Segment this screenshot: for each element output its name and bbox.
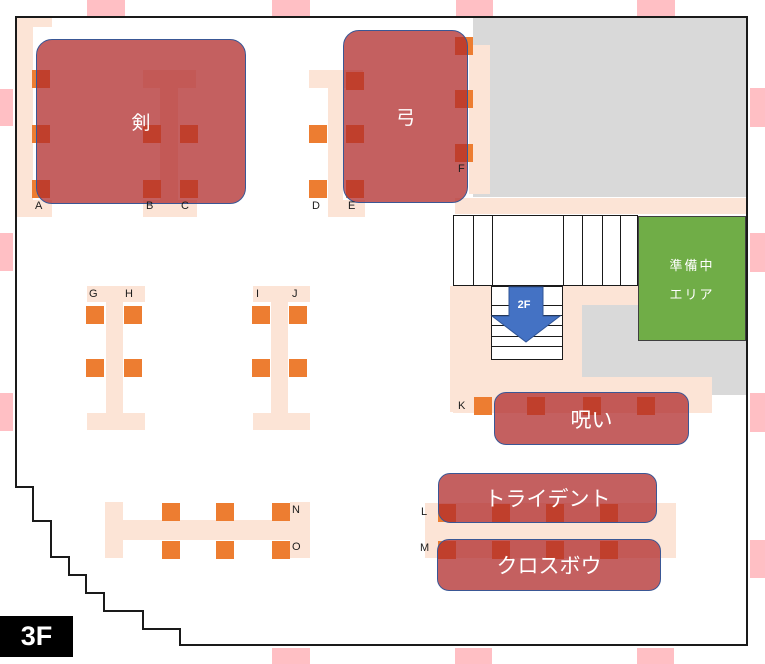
zone-sword: 剣	[36, 39, 246, 204]
current-floor-badge: 3F	[0, 616, 73, 657]
table-ij-table-stem	[271, 302, 288, 413]
pink-mark-top	[87, 0, 125, 16]
prep-area-label-line2: エリア	[669, 284, 714, 303]
stairs-upper-run	[453, 215, 638, 286]
seat-square-d-column	[309, 125, 327, 143]
seat-square-j-column	[289, 306, 307, 324]
seat-square-no-top	[162, 503, 180, 521]
seat-square-h-column	[124, 306, 142, 324]
seat-square-k-seat	[474, 397, 492, 415]
stair-line-horizontal	[491, 315, 563, 316]
seat-label-k: K	[458, 400, 465, 412]
table-gh-table-stem	[106, 302, 123, 413]
seat-label-j: J	[292, 288, 298, 300]
seat-label-l: L	[421, 506, 427, 518]
zone-curse: 呪い	[494, 392, 689, 445]
table-a-column-stem	[16, 17, 33, 217]
zone-trident: トライデント	[438, 473, 657, 523]
table-de-table-stem	[328, 88, 343, 200]
table-f-table-band	[469, 45, 490, 194]
stair-line-vertical	[620, 215, 621, 286]
seat-label-b: B	[146, 200, 153, 212]
pink-mark-left	[0, 89, 13, 126]
stairs-lower-run	[491, 286, 563, 360]
table-gh-table-bottom	[87, 413, 145, 430]
seat-label-o: O	[292, 541, 301, 553]
stair-line-vertical	[473, 215, 474, 286]
pink-mark-right	[750, 233, 765, 272]
floor-map-3f: 準備中 エリア 剣弓呪いトライデントクロスボウ 2F ABCDEFGHIJKLM…	[0, 0, 765, 664]
seat-square-j-column	[289, 359, 307, 377]
pink-mark-bottom	[272, 648, 310, 664]
stairs-target-floor-label: 2F	[511, 299, 537, 311]
pink-mark-bottom	[455, 648, 492, 664]
seat-square-d-column	[309, 180, 327, 198]
seat-square-no-top	[272, 503, 290, 521]
seat-label-m: M	[420, 542, 429, 554]
prep-area-label-line1: 準備中	[669, 255, 714, 274]
seat-label-a: A	[35, 200, 42, 212]
stair-line-vertical	[602, 215, 603, 286]
zone-bow: 弓	[343, 30, 468, 203]
stair-line-vertical	[492, 215, 493, 286]
stair-line-vertical	[563, 215, 564, 286]
pink-mark-right	[750, 540, 765, 578]
seat-square-no-bottom	[162, 541, 180, 559]
seat-label-d: D	[312, 200, 320, 212]
seat-label-i: I	[256, 288, 259, 300]
pink-mark-top	[456, 0, 493, 16]
stair-line-horizontal	[491, 346, 563, 347]
seat-square-g-column	[86, 359, 104, 377]
pink-mark-top	[637, 0, 675, 16]
pink-mark-top	[272, 0, 310, 16]
pink-mark-left	[0, 393, 13, 431]
seat-label-e: E	[348, 200, 355, 212]
seat-square-i-column	[252, 359, 270, 377]
seat-label-c: C	[181, 200, 189, 212]
stair-line-horizontal	[491, 336, 563, 337]
seat-label-h: H	[125, 288, 133, 300]
prep-area: 準備中 エリア	[638, 216, 746, 341]
seat-square-i-column	[252, 306, 270, 324]
pink-mark-right	[750, 393, 765, 432]
seat-label-n: N	[292, 504, 300, 516]
zone-crossbow: クロスボウ	[437, 539, 661, 591]
gray-top-right	[473, 18, 747, 197]
seat-square-h-column	[124, 359, 142, 377]
seat-square-no-bottom	[216, 541, 234, 559]
table-no-table-bar	[105, 520, 310, 540]
stair-line-horizontal	[491, 325, 563, 326]
seat-square-no-top	[216, 503, 234, 521]
table-ij-table-bottom	[253, 413, 310, 430]
seat-label-f: F	[458, 163, 465, 175]
table-upper-right-strip	[455, 198, 747, 214]
seat-label-g: G	[89, 288, 98, 300]
seat-square-g-column	[86, 306, 104, 324]
seat-square-no-bottom	[272, 541, 290, 559]
stair-line-vertical	[582, 215, 583, 286]
pink-mark-left	[0, 233, 13, 271]
pink-mark-right	[750, 88, 765, 127]
table-ij-table-top	[253, 286, 310, 302]
table-a-column-top	[16, 17, 52, 27]
pink-mark-bottom	[637, 648, 674, 664]
